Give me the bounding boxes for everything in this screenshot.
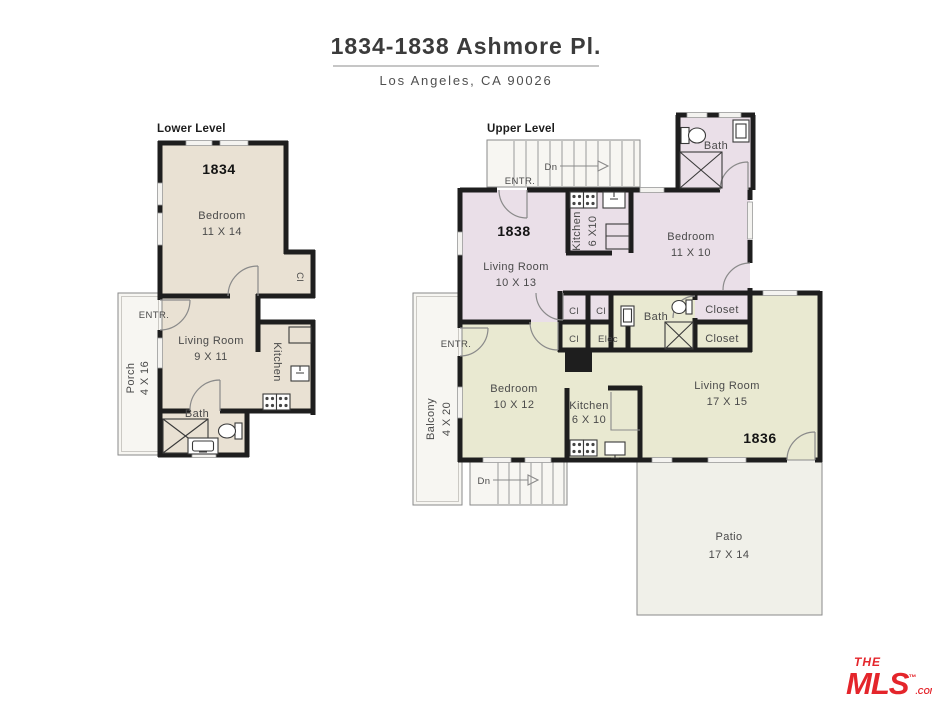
unit-number-1838: 1838: [497, 223, 531, 239]
living-1838-label: Living Room: [483, 261, 549, 273]
closet-lower-label: Closet: [705, 333, 739, 345]
stairs-top-dn-label: Dn: [545, 162, 558, 173]
closet-cl3-label: Cl: [569, 334, 579, 345]
mls-logo-mls: MLS™.COM: [846, 668, 932, 699]
bedroom-1838-dims: 11 X 10: [671, 247, 711, 259]
closet-1834-label: Cl: [294, 272, 305, 282]
living-1836-dims: 17 X 15: [707, 396, 748, 408]
kitchen-1836-dims: 6 X 10: [572, 414, 606, 426]
unit-number-1834: 1834: [202, 161, 236, 177]
bedroom-1838-label: Bedroom: [667, 231, 714, 243]
toilet: [686, 300, 692, 314]
closet-upper-label: Closet: [705, 304, 739, 316]
floor-plan-svg: Lower Level Porch 4 X 16: [0, 0, 932, 720]
balcony-dims: 4 X 20: [441, 402, 453, 436]
stove: [570, 440, 584, 456]
bath-1838-label: Bath: [704, 140, 728, 152]
bath-sink: [733, 120, 749, 142]
bath-1836-label: Bath: [644, 311, 668, 323]
entrance-1836-label: ENTR.: [441, 339, 472, 350]
porch-dims: 4 X 16: [139, 361, 151, 395]
bedroom-1834-label: Bedroom: [198, 210, 245, 222]
closet-cl2-label: Cl: [596, 306, 606, 317]
lower-level-plan: Lower Level Porch 4 X 16: [118, 123, 315, 458]
toilet: [681, 128, 689, 144]
patio-label: Patio: [715, 531, 742, 543]
porch-label: Porch: [125, 363, 137, 394]
kitchen-1836-fixtures: [570, 440, 625, 458]
entrance-1838-label: ENTR.: [505, 176, 536, 187]
kitchen-1834-label: Kitchen: [271, 342, 283, 382]
closet-cl1-label: Cl: [569, 306, 579, 317]
toilet: [219, 423, 243, 439]
living-1836-label: Living Room: [694, 380, 760, 392]
kitchen-1838-dims: 6 X10: [587, 216, 599, 247]
kitchen-1836-label: Kitchen: [569, 400, 609, 412]
lower-level-title: Lower Level: [157, 123, 226, 135]
chimney: [565, 350, 592, 372]
patio-dims: 17 X 14: [709, 549, 750, 561]
bedroom-1836-dims: 10 X 12: [494, 399, 535, 411]
stove: [570, 192, 584, 208]
mls-logo: THE MLS™.COM: [846, 656, 932, 699]
kitchen-sink: [605, 442, 625, 455]
living-1834-label: Living Room: [178, 335, 244, 347]
patio: Patio 17 X 14: [637, 460, 822, 615]
mls-logo-tm: ™: [908, 673, 915, 682]
balcony-label: Balcony: [425, 398, 437, 440]
balcony: Balcony 4 X 20: [413, 293, 462, 505]
bedroom-1836-label: Bedroom: [490, 383, 537, 395]
upper-level-plan: Upper Level Patio 17 X 14 Balcony 4 X 20: [413, 113, 822, 616]
upper-level-title: Upper Level: [487, 123, 555, 135]
stairs-bottom-dn-label: Dn: [478, 476, 491, 487]
bedroom-1834-dims: 11 X 14: [202, 226, 242, 238]
stairs-bottom: Dn: [470, 458, 567, 505]
unit-number-1836: 1836: [743, 430, 777, 446]
mls-logo-com: .COM: [915, 687, 932, 696]
bath-1834-label: Bath: [185, 408, 209, 420]
closet-elec-label: Elec: [598, 334, 618, 345]
stove: [263, 394, 277, 410]
entrance-1834-label: ENTR.: [139, 310, 170, 321]
living-1834-dims: 9 X 11: [194, 351, 227, 363]
kitchen-1838-label: Kitchen: [571, 211, 583, 251]
living-1838-dims: 10 X 13: [496, 277, 537, 289]
floor-plan-page: 1834-1838 Ashmore Pl. Los Angeles, CA 90…: [0, 0, 932, 720]
